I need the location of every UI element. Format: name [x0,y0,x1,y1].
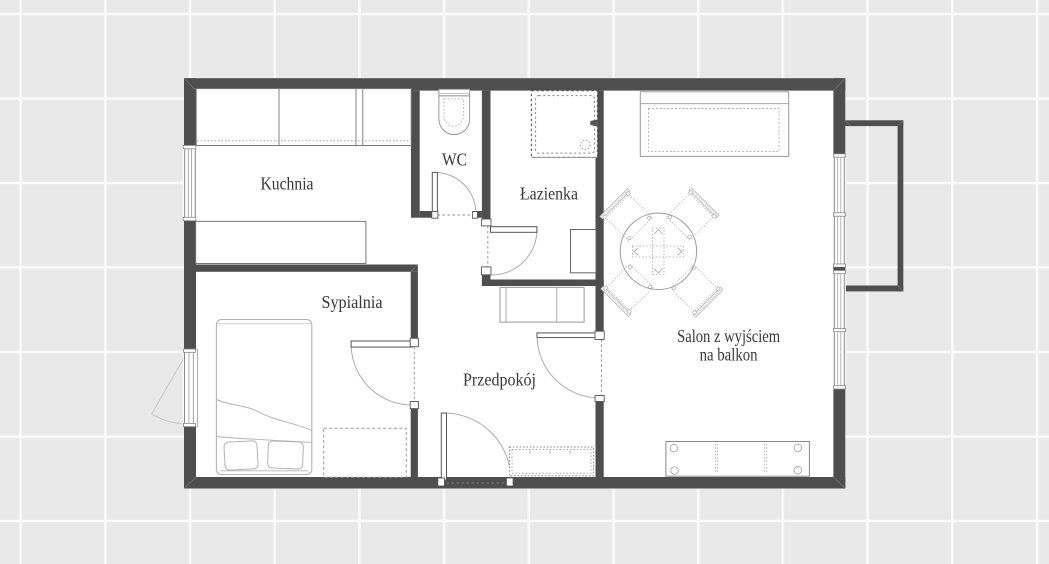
svg-text:Łazienka: Łazienka [520,183,578,203]
svg-text:Salon z wyjściem: Salon z wyjściem [677,326,780,346]
svg-text:Przedpokój: Przedpokój [463,369,536,389]
svg-text:WC: WC [442,149,467,169]
svg-text:Sypialnia: Sypialnia [322,292,383,312]
svg-text:na balkon: na balkon [700,345,758,365]
svg-text:Kuchnia: Kuchnia [261,174,314,194]
